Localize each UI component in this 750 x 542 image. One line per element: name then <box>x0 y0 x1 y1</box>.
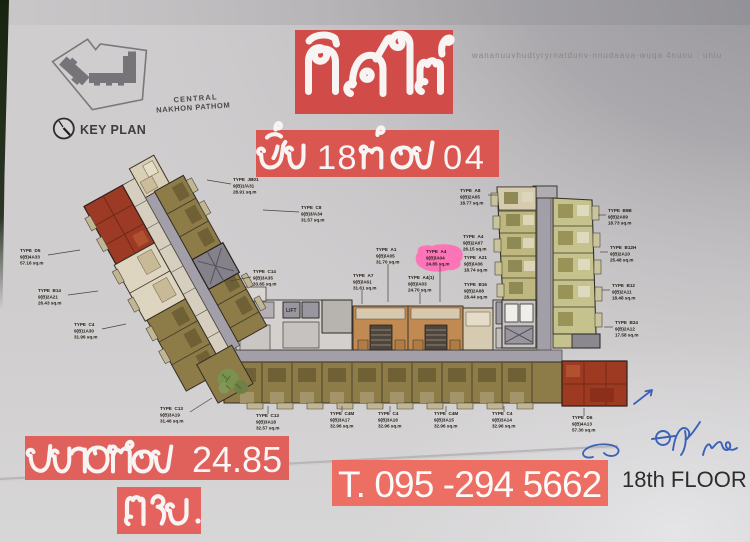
svg-text:9(B)/A03: 9(B)/A03 <box>408 281 427 286</box>
svg-text:26.43 sq.m: 26.43 sq.m <box>38 301 62 306</box>
svg-text:32.96 sq.m: 32.96 sq.m <box>492 424 516 429</box>
svg-text:TYPE JB01: TYPE JB01 <box>233 177 259 182</box>
svg-text:31.61 sq.m: 31.61 sq.m <box>353 286 377 291</box>
svg-text:17.58 sq.m: 17.58 sq.m <box>615 333 639 338</box>
svg-text:9(B)2A07: 9(B)2A07 <box>463 240 483 245</box>
svg-text:32.57 sq.m: 32.57 sq.m <box>256 426 280 431</box>
svg-text:TYPE D5: TYPE D5 <box>20 248 41 253</box>
svg-text:TYPE C8: TYPE C8 <box>301 205 322 210</box>
svg-text:9(B)3A15: 9(B)3A15 <box>434 417 454 422</box>
svg-text:9(B)3A35: 9(B)3A35 <box>253 275 273 280</box>
svg-text:TYPE B24: TYPE B24 <box>615 320 638 325</box>
svg-text:TYPE A4: TYPE A4 <box>426 249 447 254</box>
svg-text:9(B)1/A31: 9(B)1/A31 <box>233 183 255 188</box>
svg-text:TYPE A4(1): TYPE A4(1) <box>408 275 435 280</box>
svg-text:TYPE B9B: TYPE B9B <box>608 208 632 213</box>
svg-text:TYPE C14: TYPE C14 <box>253 269 276 274</box>
svg-text:TYPE A7: TYPE A7 <box>353 273 374 278</box>
svg-text:TYPE C4: TYPE C4 <box>492 411 513 416</box>
svg-text:9(B)/A04: 9(B)/A04 <box>426 255 445 260</box>
svg-text:TYPE D6: TYPE D6 <box>572 415 593 420</box>
svg-text:TYPE B12H: TYPE B12H <box>610 245 637 250</box>
svg-text:9(B)3/A34: 9(B)3/A34 <box>301 211 323 216</box>
svg-text:33.65 sq.m: 33.65 sq.m <box>253 282 277 287</box>
svg-text:TYPE B14: TYPE B14 <box>38 288 61 293</box>
svg-text:9(B)4A33: 9(B)4A33 <box>20 254 40 259</box>
svg-text:9(B)1A30: 9(B)1A30 <box>74 328 94 333</box>
svg-text:KEY PLAN: KEY PLAN <box>80 123 146 137</box>
svg-text:32.96 sq.m: 32.96 sq.m <box>434 424 458 429</box>
svg-text:9(B)3A14: 9(B)3A14 <box>492 417 512 422</box>
svg-text:9(B)2A05: 9(B)2A05 <box>460 194 480 199</box>
svg-text:TYPE C13: TYPE C13 <box>160 406 183 411</box>
svg-text:TYPE C4: TYPE C4 <box>378 411 399 416</box>
svg-text:TYPE A4: TYPE A4 <box>463 234 484 239</box>
svg-text:28.91 sq.m: 28.91 sq.m <box>233 190 257 195</box>
svg-text:9(B)2A10: 9(B)2A10 <box>610 251 630 256</box>
svg-text:wananuuvhudtyryrnatdunv-nnudaa: wananuuvhudtyryrnatdunv-nnudaaua-wuqa 4n… <box>471 51 722 60</box>
svg-text:9(B)3A16: 9(B)3A16 <box>378 417 398 422</box>
svg-text:9(B)2A21: 9(B)2A21 <box>38 294 58 299</box>
svg-text:31.70 sq.m: 31.70 sq.m <box>376 260 400 265</box>
svg-text:18.77 sq.m: 18.77 sq.m <box>460 201 484 206</box>
svg-text:25.48 sq.m: 25.48 sq.m <box>610 258 634 263</box>
svg-text:18.48 sq.m: 18.48 sq.m <box>612 296 636 301</box>
svg-text:9(B)/A05: 9(B)/A05 <box>376 253 395 258</box>
svg-text:31.46 sq.m: 31.46 sq.m <box>160 419 184 424</box>
svg-text:9(B)3A18: 9(B)3A18 <box>256 419 276 424</box>
svg-text:9(B)2A12: 9(B)2A12 <box>615 326 635 331</box>
svg-text:31.57 sq.m: 31.57 sq.m <box>301 218 325 223</box>
svg-text:9(B)3A19: 9(B)3A19 <box>160 412 180 417</box>
svg-text:TYPE B12: TYPE B12 <box>612 283 635 288</box>
svg-text:9(B)4A13: 9(B)4A13 <box>572 421 592 426</box>
svg-text:57.30 sq.m: 57.30 sq.m <box>572 428 596 433</box>
svg-text:32.96 sq.m: 32.96 sq.m <box>330 424 354 429</box>
svg-text:31.96 sq.m: 31.96 sq.m <box>74 335 98 340</box>
svg-text:9(B)3A17: 9(B)3A17 <box>330 417 350 422</box>
svg-text:18.74 sq.m: 18.74 sq.m <box>464 268 488 273</box>
svg-text:TYPE C4: TYPE C4 <box>74 322 95 327</box>
svg-text:26.15 sq.m: 26.15 sq.m <box>463 247 487 252</box>
svg-text:TYPE B16: TYPE B16 <box>464 282 487 287</box>
svg-text:57.16 sq.m: 57.16 sq.m <box>20 261 44 266</box>
svg-text:24.85 sq.m: 24.85 sq.m <box>426 262 450 267</box>
svg-text:32.96 sq.m: 32.96 sq.m <box>378 424 402 429</box>
svg-text:9(B)2A08: 9(B)2A08 <box>464 288 484 293</box>
svg-text:28.44 sq.m: 28.44 sq.m <box>464 295 488 300</box>
svg-text:9(B)/A61: 9(B)/A61 <box>353 279 372 284</box>
svg-text:24.70 sq.m: 24.70 sq.m <box>408 288 432 293</box>
svg-text:18.73 sq.m: 18.73 sq.m <box>608 221 632 226</box>
svg-text:TYPE A1: TYPE A1 <box>376 247 397 252</box>
svg-text:TYPE A21: TYPE A21 <box>464 255 487 260</box>
svg-text:TYPE A8: TYPE A8 <box>460 188 481 193</box>
svg-text:LIFT: LIFT <box>286 308 297 314</box>
svg-text:9(B)/A06: 9(B)/A06 <box>464 261 483 266</box>
svg-text:9(B)2A11: 9(B)2A11 <box>612 289 632 294</box>
svg-text:9(B)2A09: 9(B)2A09 <box>608 214 628 219</box>
